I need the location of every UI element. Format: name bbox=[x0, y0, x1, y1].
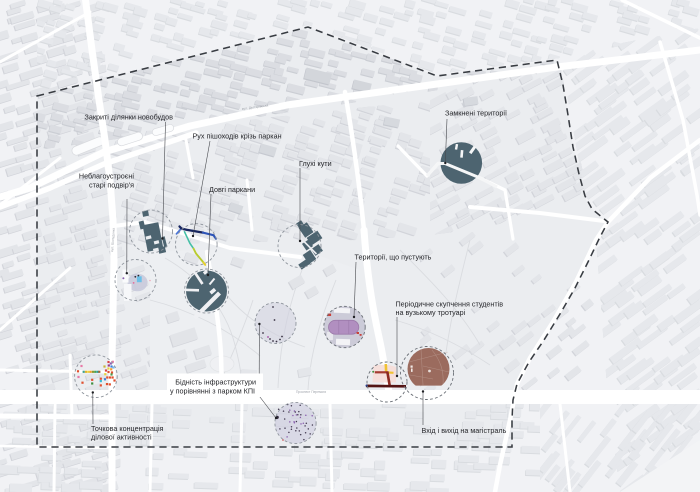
svg-text:Глухі кути: Глухі кути bbox=[299, 159, 332, 168]
svg-text:Вхід і вихід на магістраль: Вхід і вихід на магістраль bbox=[422, 426, 507, 435]
svg-text:Замкнені території: Замкнені території bbox=[445, 109, 507, 118]
svg-text:на вузькому тротуарі: на вузькому тротуарі bbox=[396, 308, 466, 317]
svg-text:у порівнянні з парком КПІ: у порівнянні з парком КПІ bbox=[170, 387, 255, 396]
svg-text:Рух пішоходів крізь паркан: Рух пішоходів крізь паркан bbox=[193, 132, 282, 141]
svg-text:ділової активності: ділової активності bbox=[91, 433, 152, 442]
svg-text:Довгі паркани: Довгі паркани bbox=[209, 185, 255, 194]
svg-text:Території, що пустують: Території, що пустують bbox=[355, 253, 432, 262]
svg-text:Бідність інфраструктури: Бідність інфраструктури bbox=[175, 378, 256, 387]
svg-text:старі подвір'я: старі подвір'я bbox=[89, 180, 134, 189]
svg-text:Неблагоустроєні: Неблагоустроєні bbox=[79, 171, 135, 180]
svg-text:Закриті ділянки новобудов: Закриті ділянки новобудов bbox=[85, 113, 174, 122]
svg-text:Проспект Перемоги: Проспект Перемоги bbox=[296, 390, 326, 394]
